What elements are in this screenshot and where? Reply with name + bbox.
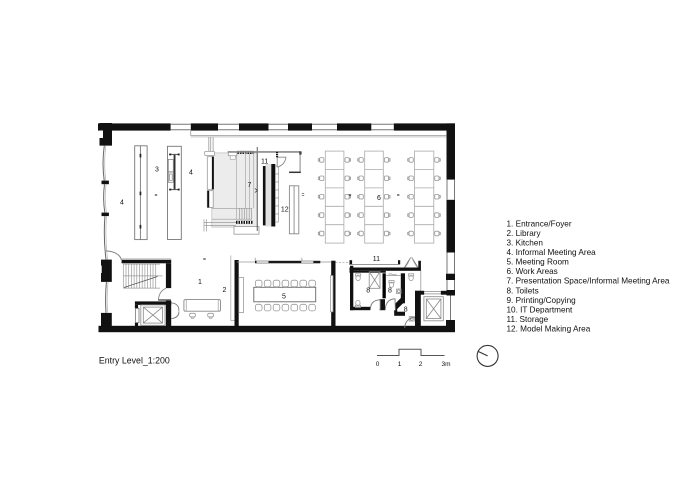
svg-text:1: 1 bbox=[398, 361, 402, 368]
svg-text:2. Library: 2. Library bbox=[507, 229, 542, 238]
svg-text:11. Storage: 11. Storage bbox=[507, 315, 549, 324]
svg-text:0: 0 bbox=[376, 361, 380, 368]
svg-text:3m: 3m bbox=[441, 361, 450, 368]
svg-text:=: = bbox=[155, 193, 158, 199]
svg-text:2: 2 bbox=[223, 287, 227, 294]
svg-text:10. IT Department: 10. IT Department bbox=[507, 305, 574, 314]
svg-text:8. Toilets: 8. Toilets bbox=[507, 286, 539, 295]
svg-text:=: = bbox=[349, 193, 352, 199]
svg-text:=: = bbox=[203, 257, 206, 263]
svg-text:6. Work Areas: 6. Work Areas bbox=[507, 267, 558, 276]
svg-text:4: 4 bbox=[120, 200, 124, 207]
svg-text:5. Meeting Room: 5. Meeting Room bbox=[507, 258, 570, 267]
svg-text:1: 1 bbox=[198, 279, 202, 286]
svg-text:4. Informal Meeting Area: 4. Informal Meeting Area bbox=[507, 248, 597, 257]
svg-text:3: 3 bbox=[155, 167, 159, 174]
svg-text:Entry Level_1:200: Entry Level_1:200 bbox=[99, 355, 170, 365]
svg-text:4: 4 bbox=[189, 170, 193, 177]
svg-text:8: 8 bbox=[388, 288, 392, 295]
svg-text:=: = bbox=[397, 193, 400, 199]
svg-text:5: 5 bbox=[282, 293, 286, 300]
svg-text:7. Presentation Space/Informal: 7. Presentation Space/Informal Meeting A… bbox=[507, 277, 670, 286]
svg-text:11: 11 bbox=[261, 158, 268, 165]
svg-text:2: 2 bbox=[419, 361, 423, 368]
svg-text:8: 8 bbox=[404, 307, 408, 314]
svg-text:7: 7 bbox=[248, 182, 252, 189]
svg-text:8: 8 bbox=[366, 288, 370, 295]
svg-text:3. Kitchen: 3. Kitchen bbox=[507, 239, 544, 248]
svg-text:1. Entrance/Foyer: 1. Entrance/Foyer bbox=[507, 219, 572, 228]
svg-text:9. Printing/Copying: 9. Printing/Copying bbox=[507, 296, 577, 305]
svg-text:=: = bbox=[302, 193, 305, 199]
svg-text:12. Model Making Area: 12. Model Making Area bbox=[507, 324, 591, 333]
svg-text:12: 12 bbox=[281, 206, 289, 213]
svg-text:11: 11 bbox=[373, 256, 380, 263]
svg-text:6: 6 bbox=[377, 195, 381, 202]
